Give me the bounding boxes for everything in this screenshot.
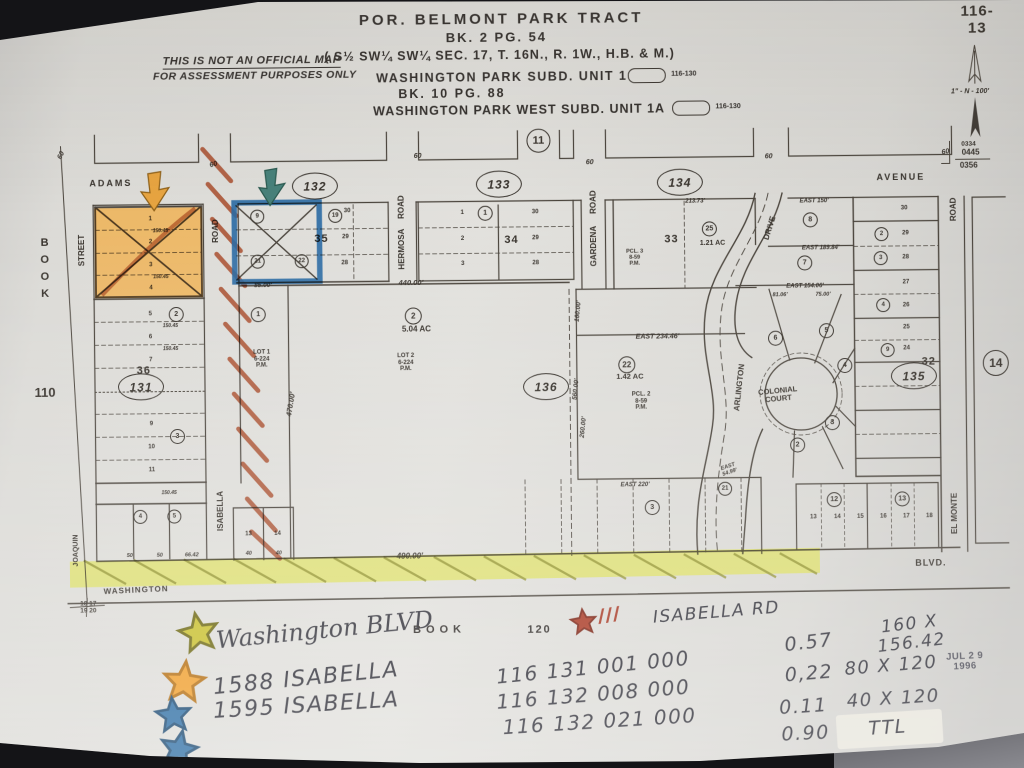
block-33: 33 (664, 233, 678, 245)
map-text: 490.00' (397, 553, 423, 562)
street-adams: ADAMS (89, 179, 132, 189)
print-book-number: 120 (527, 624, 551, 636)
lot-circle-12: 12 (827, 492, 842, 507)
street-arlington: ARLINGTON (733, 364, 747, 412)
road-label-isabella: ROAD (212, 219, 221, 243)
map-text: EAST 234.46' (636, 333, 680, 341)
lot-circle-13: 13 (895, 491, 910, 506)
acreage-142: 1.42 AC (616, 372, 643, 381)
street-washington: WASHINGTON (103, 585, 168, 597)
hand-isabella-rd: ISABELLA RD (652, 598, 780, 627)
scan-tilt-wrapper: THIS IS NOT AN OFFICIAL MAP FOR ASSESSME… (0, 0, 1024, 768)
map-text: 440.00' (399, 279, 424, 288)
lot-circle-5: 5 (167, 509, 181, 523)
map-text: 14 (274, 531, 281, 538)
hand-acres-3: 0.11 (779, 695, 829, 719)
map-text: 81.06' (773, 292, 788, 298)
lot-circle-2: 2 (874, 227, 888, 241)
map-text: 150.45 (163, 347, 178, 353)
map-text: 150.45 (153, 229, 168, 235)
map-text: 1 (149, 216, 152, 223)
map-text: EAST 154.06' (786, 283, 824, 290)
map-text: 60 (414, 153, 422, 161)
map-text: 27 (903, 280, 910, 287)
lot-circle-11: 11 (526, 129, 550, 153)
street-hermosa: HERMOSA (398, 229, 407, 270)
map-paper-sheet: THIS IS NOT AN OFFICIAL MAP FOR ASSESSME… (0, 0, 1024, 768)
lot-circle-6: 6 (768, 331, 783, 346)
map-text: 5 (149, 311, 152, 318)
map-text: 13 (245, 531, 252, 538)
map-text: 470.00' (285, 391, 297, 417)
lot-circle-9: 9 (250, 210, 264, 224)
block-ellipse-131: 131 (118, 373, 164, 400)
hand-size-3: 40 X 120 (846, 686, 940, 712)
lot-circle-1: 1 (251, 307, 266, 322)
date-stamp: JUL 2 9 1996 (933, 650, 996, 674)
map-text: 29 (902, 231, 909, 238)
map-text: 40 (246, 551, 252, 557)
map-text: 213.73' (685, 199, 705, 206)
lot-circle-8: 8 (803, 212, 818, 227)
hand-washington-blvd: Washington BLVD (215, 606, 434, 654)
lot-circle-7: 7 (797, 255, 812, 270)
acreage-121: 1.21 AC (700, 240, 726, 248)
map-text: 10 (148, 444, 155, 451)
road-label-gardena: ROAD (590, 190, 599, 214)
map-text: 30 (344, 208, 351, 215)
map-text: 18 (926, 513, 933, 520)
lot-circle-4: 4 (837, 358, 852, 373)
lot-circle-22: 22 (295, 254, 309, 268)
lot-circle-22: 22 (618, 356, 635, 373)
map-text: 60 (765, 153, 773, 161)
map-text: 7 (149, 357, 152, 364)
street-street: STREET (78, 235, 87, 267)
map-text: 25 (903, 325, 910, 332)
block-ellipse-133: 133 (476, 170, 522, 197)
map-text: 150.45 (161, 491, 176, 497)
sheet-number: 116-13 (956, 3, 999, 36)
map-text: 50 (127, 553, 133, 559)
lot-circle-14: 14 (983, 350, 1009, 376)
map-text: EAST 150' (800, 198, 829, 205)
map-text: 60 (586, 159, 594, 167)
acreage-504: 5.04 AC (402, 325, 431, 334)
map-text: 150.45 (163, 324, 178, 330)
lot-circle-3: 3 (645, 500, 660, 515)
map-text: 1 (461, 210, 464, 217)
block-35: 35 (314, 233, 328, 245)
map-text: 13 (810, 515, 817, 522)
hand-acres-1: 0.57 (784, 630, 834, 656)
map-text: 560.00' (571, 378, 580, 400)
map-text: 17 (903, 514, 910, 521)
map-text: 66.42 (185, 552, 199, 558)
ref-0445: 0445 (962, 149, 980, 158)
map-text: 15 (857, 514, 864, 521)
pcl3-label: PCL. 3 8-59 P.M. (626, 249, 643, 267)
map-text: 150.45 (153, 275, 168, 281)
map-text: 75.00' (816, 292, 831, 298)
photo-of-assessor-map: THIS IS NOT AN OFFICIAL MAP FOR ASSESSME… (0, 0, 1024, 768)
block-ellipse-136: 136 (523, 373, 569, 400)
map-text: 3 (461, 261, 464, 268)
block-ellipse-135: 135 (891, 362, 937, 389)
street-el-monte: EL MONTE (951, 493, 960, 534)
lot-circle-5: 5 (819, 323, 834, 338)
map-text: 24 (903, 346, 910, 353)
map-text: EAST 220' (620, 482, 649, 489)
lot-circle-4: 4 (133, 510, 147, 524)
lot-circle-21: 21 (718, 482, 732, 496)
block-ellipse-132: 132 (292, 172, 338, 199)
map-text: 28 (532, 260, 539, 267)
map-text: 29 (532, 235, 539, 242)
lot-circle-2: 2 (169, 307, 184, 322)
hand-total-label: TTL (868, 716, 908, 739)
lot-circle-1: 1 (478, 206, 493, 221)
hand-tally-111: /// (597, 603, 623, 628)
book-page-110: 110 (35, 386, 56, 401)
map-text: 4 (149, 285, 152, 292)
map-text: 28 (341, 260, 348, 267)
street-joaquin: JOAQUIN (73, 535, 81, 567)
section-corner: 18 17 19 20 (80, 600, 96, 614)
lot2-label: LOT 2 6-224 P.M. (397, 353, 414, 373)
lot-circle-9: 9 (881, 343, 895, 357)
map-text: 2 (149, 239, 152, 246)
street-gardena: GARDENA (590, 226, 599, 267)
pcl2-label: PCL. 2 8-59 P.M. (632, 392, 651, 412)
lot-circle-2: 2 (790, 437, 805, 452)
ref-0356: 0356 (960, 162, 978, 171)
print-book: BOOK (413, 623, 466, 636)
lot-circle-19: 19 (328, 209, 342, 223)
map-text: 50 (157, 553, 163, 559)
lot-circle-3: 3 (170, 429, 185, 444)
map-text: 160.00' (574, 300, 583, 322)
map-text: 30 (532, 209, 539, 216)
map-text: 2 (461, 236, 464, 243)
map-text: 16 (880, 514, 887, 521)
lot-circle-3: 3 (874, 251, 888, 265)
lot-circle-21: 21 (251, 255, 265, 269)
map-text: EAST 189.84' (802, 245, 840, 252)
map-text: 14 (834, 514, 841, 521)
map-text: 29 (342, 234, 349, 241)
map-text: 26 (903, 303, 910, 310)
road-label-hermosa: ROAD (398, 195, 407, 219)
map-text: 60 (56, 150, 66, 160)
block-ellipse-134: 134 (657, 168, 703, 195)
road-label-el-monte: ROAD (950, 198, 959, 222)
map-text: 260.00' (579, 416, 588, 438)
colonial-court: COLONIAL COURT (758, 385, 799, 405)
street-drive: DRIVE (763, 215, 779, 241)
hand-acres-total: 0.90 (781, 722, 830, 745)
map-text: 30 (901, 206, 908, 213)
map-text: 60 (941, 148, 950, 157)
map-text: 85.00' (254, 282, 272, 289)
map-text: EAST 54.99' (720, 462, 738, 478)
book-vertical: BOOK (38, 237, 51, 305)
scale-note: 1" - N - 100' (951, 88, 989, 96)
lot-circle-2: 2 (405, 307, 422, 324)
street-avenue: AVENUE (876, 173, 925, 183)
lot-circle-3: 3 (825, 415, 840, 430)
map-text: 28 (902, 255, 909, 262)
street-isabella: ISABELLA (217, 491, 226, 531)
lot1-label: LOT 1 6-224 P.M. (253, 350, 270, 370)
map-text: 6 (149, 334, 152, 341)
map-text: 60 (209, 160, 219, 170)
map-text: 11 (149, 467, 155, 474)
map-label-layer: 116-131" - N - 100'033404450356ADAMSAVEN… (0, 0, 1024, 768)
hand-acres-2: 0,22 (784, 662, 834, 687)
lot-circle-25: 25 (702, 221, 717, 236)
map-text: 40 (276, 550, 282, 556)
lot-circle-4: 4 (876, 298, 890, 312)
map-text: 3 (149, 262, 152, 269)
map-text: 9 (150, 421, 153, 428)
block-34: 34 (504, 234, 518, 246)
street-blvd: BLVD. (915, 559, 946, 569)
